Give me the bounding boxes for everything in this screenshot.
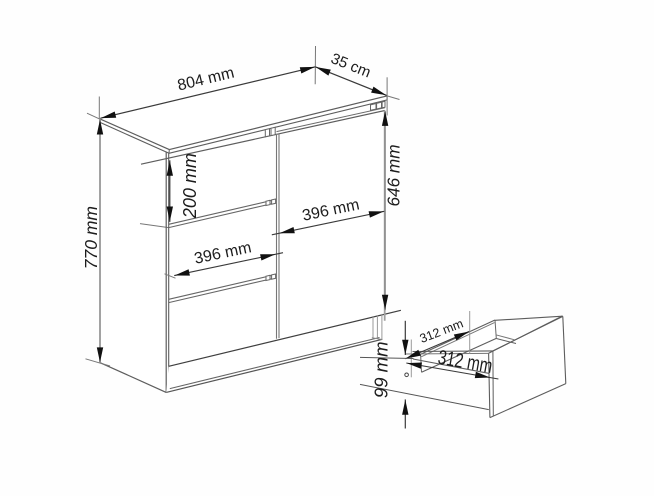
svg-text:200 mm: 200 mm [180, 153, 200, 219]
svg-text:99 mm: 99 mm [371, 342, 392, 399]
svg-text:770 mm: 770 mm [81, 206, 101, 269]
svg-text:646 mm: 646 mm [383, 144, 403, 206]
